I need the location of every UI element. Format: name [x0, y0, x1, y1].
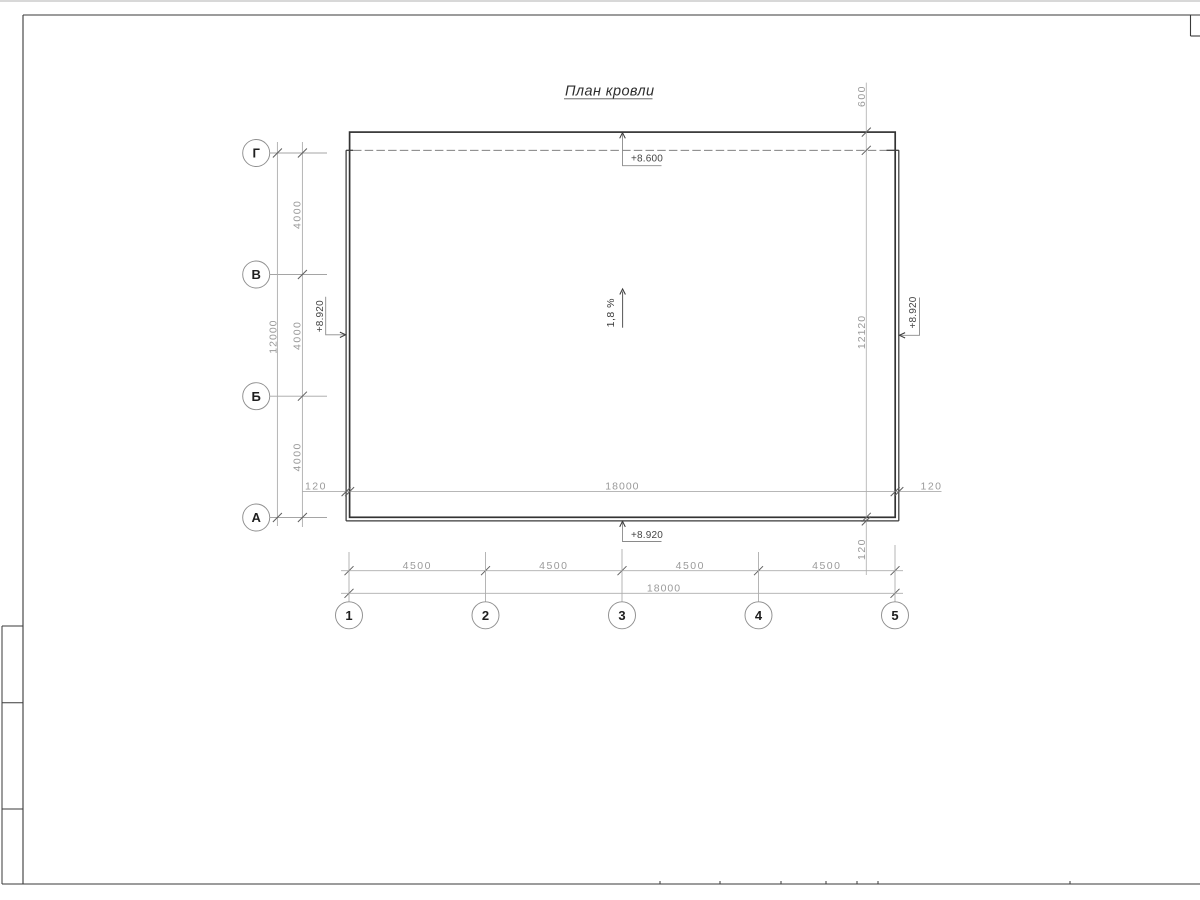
svg-text:18000: 18000: [647, 582, 681, 594]
svg-text:3: 3: [618, 608, 625, 623]
svg-text:600: 600: [856, 85, 868, 107]
svg-text:120: 120: [921, 480, 943, 492]
svg-text:4500: 4500: [676, 560, 705, 572]
svg-text:+8.920: +8.920: [908, 296, 919, 328]
svg-text:120: 120: [305, 480, 327, 492]
svg-text:4000: 4000: [292, 442, 304, 471]
svg-text:120: 120: [856, 538, 868, 560]
svg-text:1: 1: [345, 608, 352, 623]
svg-text:5: 5: [891, 608, 898, 623]
svg-text:А: А: [252, 510, 262, 525]
svg-text:18000: 18000: [605, 480, 639, 492]
svg-text:+8.600: +8.600: [631, 154, 663, 165]
svg-text:+8.920: +8.920: [631, 530, 663, 541]
svg-text:В: В: [252, 267, 261, 282]
svg-text:Г: Г: [253, 146, 261, 161]
svg-text:4500: 4500: [812, 560, 841, 572]
svg-text:4500: 4500: [539, 560, 568, 572]
svg-text:+8.920: +8.920: [315, 300, 326, 332]
svg-text:4500: 4500: [403, 560, 432, 572]
svg-text:4000: 4000: [292, 200, 304, 229]
svg-text:4: 4: [755, 608, 763, 623]
svg-text:2: 2: [482, 608, 489, 623]
svg-text:Б: Б: [252, 389, 261, 404]
svg-text:12120: 12120: [856, 315, 868, 349]
svg-text:1,8 %: 1,8 %: [605, 298, 617, 327]
svg-text:12000: 12000: [268, 319, 280, 353]
svg-text:4000: 4000: [292, 321, 304, 350]
svg-text:План кровли: План кровли: [565, 84, 654, 100]
